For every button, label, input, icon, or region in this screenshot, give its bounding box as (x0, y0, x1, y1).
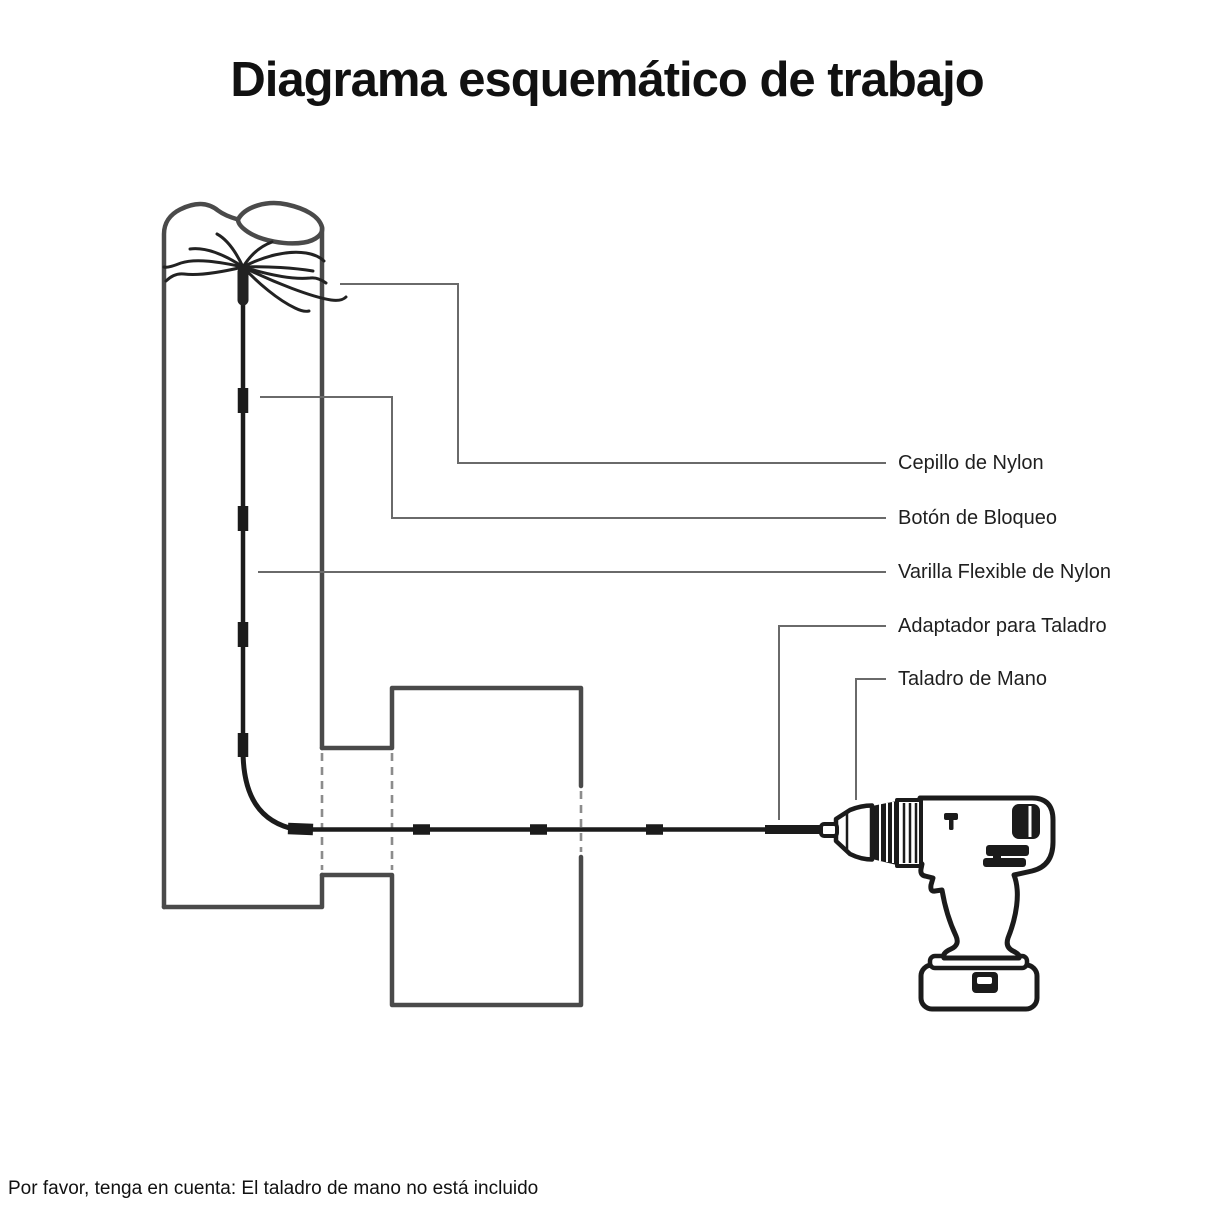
wall-section-lower (322, 857, 581, 1005)
disclaimer-note: Por favor, tenga en cuenta: El taladro d… (8, 1178, 538, 1200)
label-drill-adapter: Adaptador para Taladro (898, 613, 1107, 639)
label-flexible-rod: Varilla Flexible de Nylon (898, 559, 1111, 585)
leader-lock (260, 397, 886, 518)
drill-bit-tip (821, 824, 837, 836)
drill-stripes (983, 845, 1029, 867)
hidden-edge-dashed-lines (322, 753, 581, 870)
drill-nose-cone (836, 806, 872, 860)
nylon-brush (164, 234, 346, 311)
leader-brush (340, 284, 886, 463)
drill-vent (1012, 804, 1040, 839)
label-lock-button: Botón de Bloqueo (898, 505, 1057, 531)
flexible-rod (243, 268, 822, 830)
schematic-page: Diagrama esquemático de trabajo (0, 0, 1214, 1214)
drill-battery-clip (972, 972, 998, 993)
chimney-left-wall (164, 204, 238, 907)
chimney-pipe (164, 203, 581, 1005)
chimney-opening (238, 203, 322, 243)
rod-bend-coupler (288, 829, 313, 830)
leader-lines (258, 284, 886, 820)
hand-drill (821, 798, 1053, 1009)
chimney-bottom (164, 875, 322, 907)
leader-drill (856, 679, 886, 800)
work-diagram (0, 0, 1214, 1214)
label-hand-drill: Taladro de Mano (898, 666, 1047, 692)
leader-adapter (779, 626, 886, 820)
rod-connectors (243, 271, 663, 830)
label-nylon-brush: Cepillo de Nylon (898, 450, 1044, 476)
wall-section-upper (322, 688, 581, 786)
rod-bend (243, 750, 296, 830)
